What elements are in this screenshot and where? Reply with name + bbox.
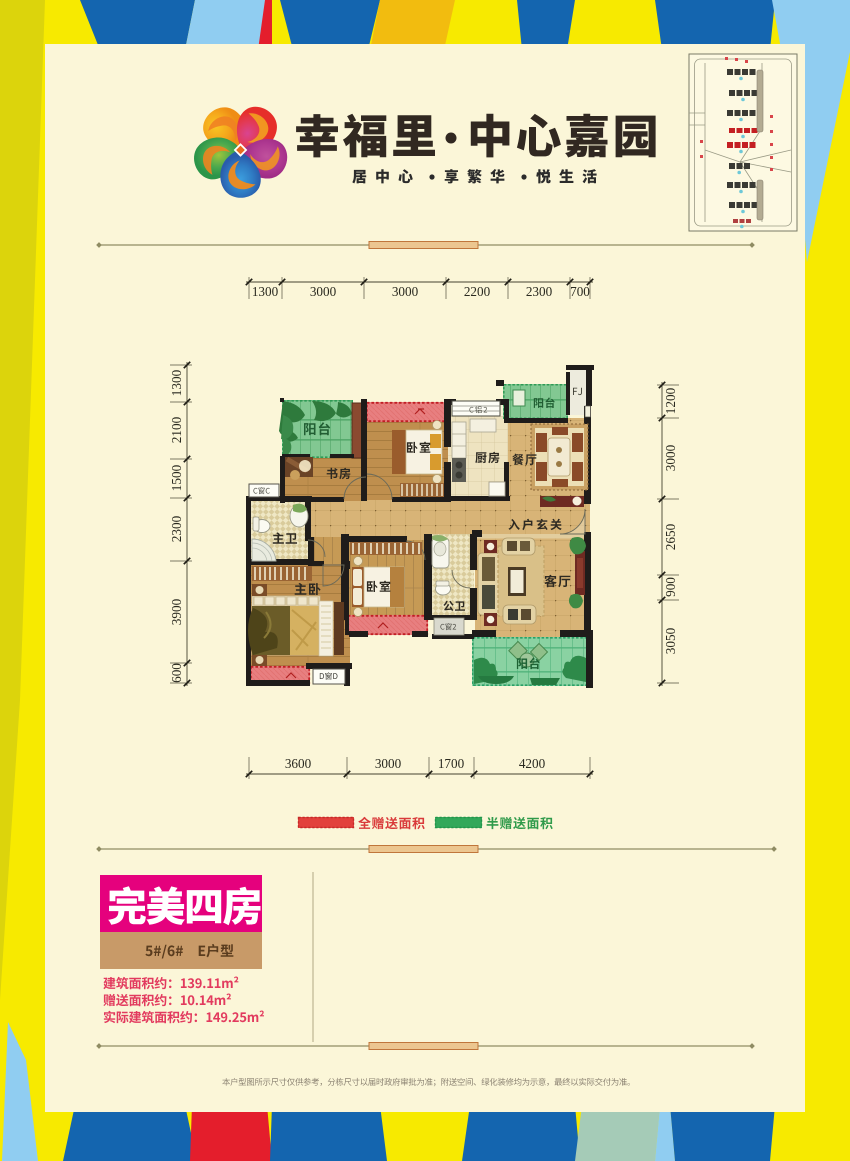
svg-text:3000: 3000 [663, 444, 678, 471]
svg-text:3000: 3000 [375, 756, 402, 771]
svg-text:3050: 3050 [663, 627, 678, 654]
svg-text:1300: 1300 [252, 284, 279, 299]
svg-text:600: 600 [169, 663, 184, 683]
svg-text:4200: 4200 [519, 756, 546, 771]
svg-text:2100: 2100 [169, 416, 184, 443]
svg-text:3900: 3900 [169, 598, 184, 625]
svg-text:1500: 1500 [169, 464, 184, 491]
svg-text:1300: 1300 [169, 369, 184, 396]
svg-text:2200: 2200 [464, 284, 491, 299]
svg-text:700: 700 [570, 284, 590, 299]
svg-text:1700: 1700 [438, 756, 465, 771]
svg-text:900: 900 [663, 577, 678, 597]
svg-text:1200: 1200 [663, 387, 678, 414]
svg-text:2300: 2300 [169, 515, 184, 542]
svg-text:2650: 2650 [663, 523, 678, 550]
svg-text:2300: 2300 [526, 284, 553, 299]
svg-text:3600: 3600 [285, 756, 312, 771]
svg-text:3000: 3000 [310, 284, 337, 299]
svg-text:3000: 3000 [392, 284, 419, 299]
